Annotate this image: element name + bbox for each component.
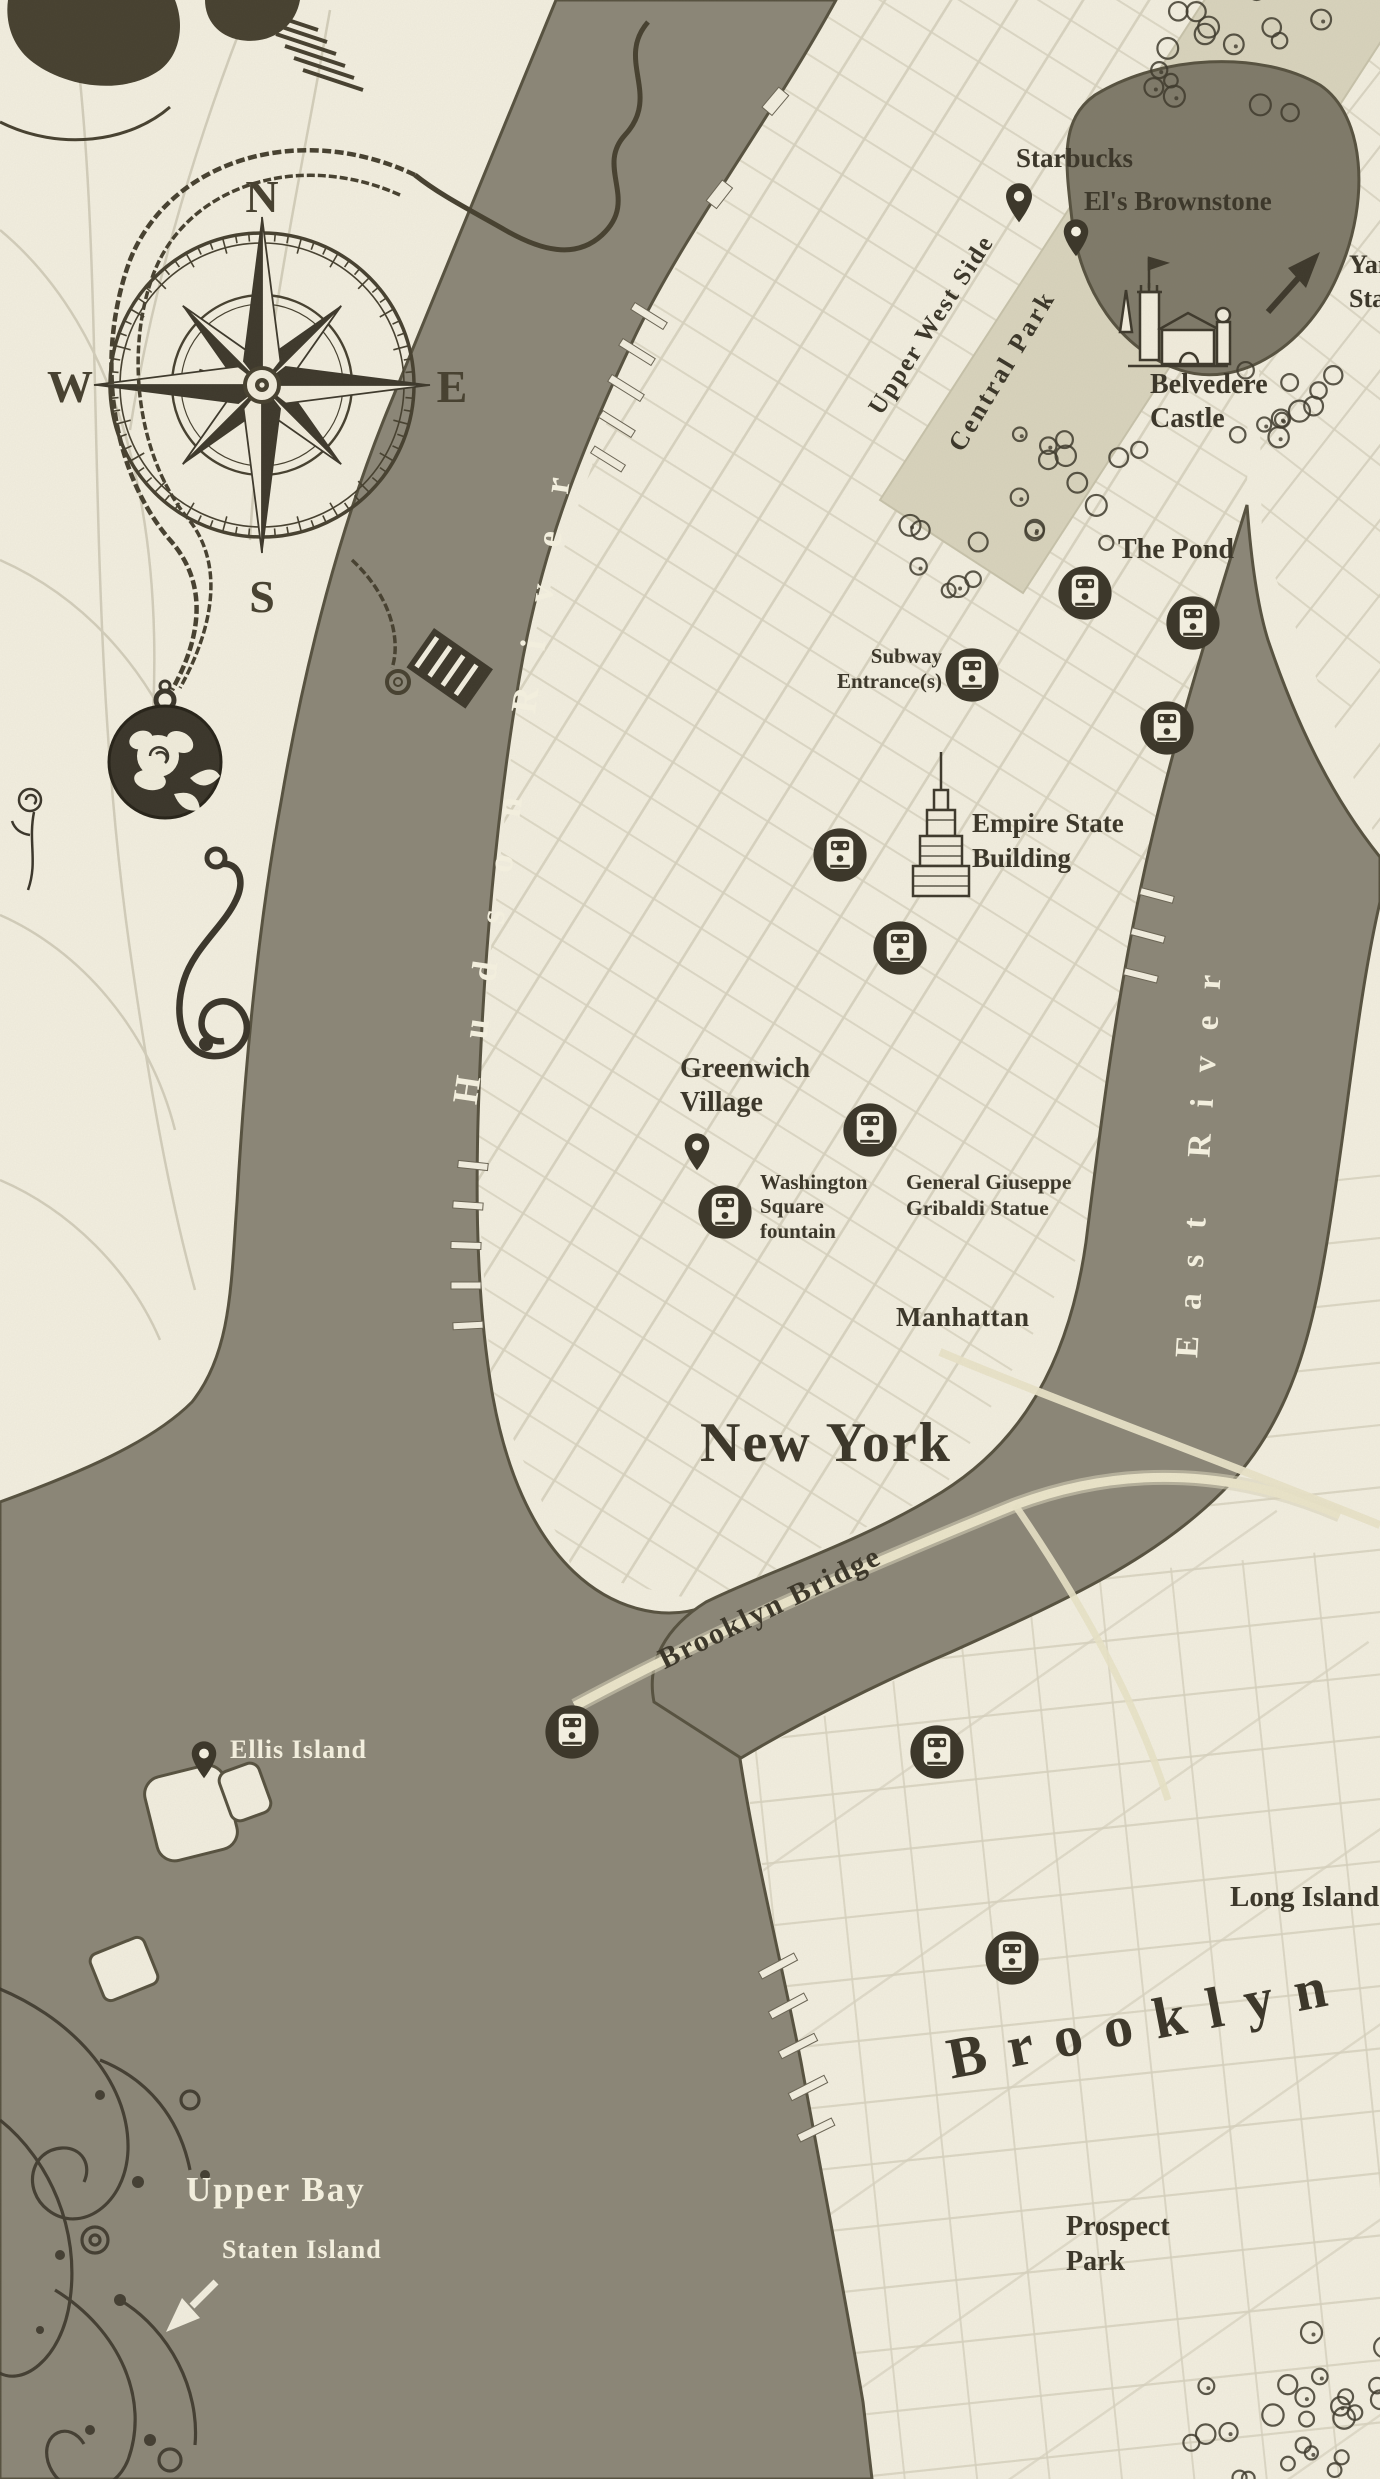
map-pin-icon <box>1004 182 1034 229</box>
subway-entrance-icon <box>1165 595 1221 656</box>
subway-entrance-icon <box>1139 700 1195 761</box>
subway-entrance-icon <box>1057 565 1113 626</box>
subway-entrance-icon <box>544 1704 600 1765</box>
subway-entrance-icon <box>872 920 928 981</box>
map-pin-icon <box>683 1132 711 1177</box>
subway-entrance-icon <box>812 827 868 888</box>
nyc-vintage-map: N S W E <box>0 0 1380 2479</box>
map-pin-icon <box>1062 218 1090 263</box>
map-pin-icon <box>190 1740 218 1785</box>
subway-entrance-icon <box>842 1102 898 1163</box>
subway-entrance-icon <box>909 1724 965 1785</box>
subway-entrance-icon <box>944 647 1000 708</box>
icons-layer <box>0 0 1380 2479</box>
subway-entrance-icon <box>984 1930 1040 1991</box>
subway-entrance-icon <box>697 1184 753 1245</box>
